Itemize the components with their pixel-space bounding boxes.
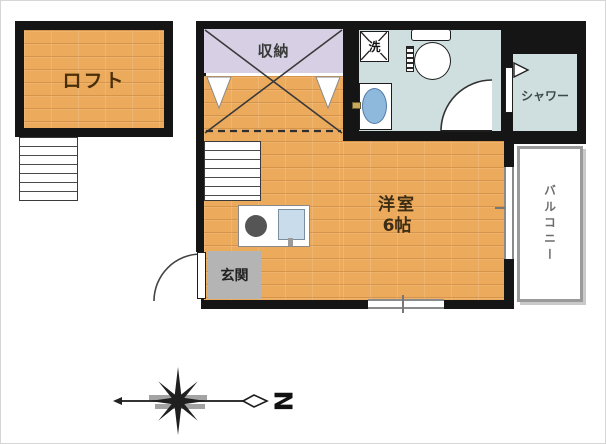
- kitchen-faucet-icon: [288, 238, 293, 246]
- room-type-label: 洋室: [356, 195, 438, 216]
- wall-shower-right: [577, 21, 586, 144]
- balcony-area: バルコニー: [517, 146, 583, 302]
- bottom-window-tick: [402, 295, 404, 313]
- toilet-control-panel: [406, 46, 414, 72]
- entrance-area: 玄関: [208, 251, 261, 299]
- shower-label: シャワー: [511, 87, 579, 104]
- basin-faucet-icon: [352, 102, 361, 109]
- bottom-window: [368, 299, 444, 309]
- bathroom-door-arc: [439, 78, 495, 134]
- folding-door-triangle-left: [207, 77, 231, 108]
- toilet-bowl: [414, 42, 451, 80]
- wash-basin-icon: [362, 88, 387, 124]
- wall-bottom-left: [201, 299, 368, 309]
- floorplan-canvas: ロフト 収納 玄関: [0, 0, 606, 444]
- north-letter: N: [269, 391, 298, 412]
- washer-label: 洗: [368, 41, 380, 53]
- wall-bottom-right: [444, 299, 514, 309]
- kitchen-sink: [278, 209, 305, 240]
- toilet-tank: [411, 29, 451, 41]
- main-room-label: 洋室 6帖: [356, 195, 438, 238]
- wall-right-upper: [504, 140, 514, 167]
- storage-label: 収納: [204, 40, 343, 61]
- loft-label: ロフト: [24, 30, 164, 128]
- north-arrowhead-icon: [243, 395, 267, 407]
- folding-door-triangle-right: [316, 77, 340, 108]
- entrance-door-leaf: [197, 252, 206, 299]
- stove-burner-icon: [245, 215, 267, 237]
- shower-door-swing-icon: [512, 61, 530, 79]
- wall-storage-bath-divider: [343, 21, 359, 141]
- wall-above-shower: [501, 21, 586, 54]
- entrance-label: 玄関: [208, 251, 261, 299]
- compass-rose-icon: N: [109, 363, 309, 443]
- balcony-label: バルコニー: [542, 184, 559, 264]
- washing-machine: 洗: [360, 31, 389, 62]
- loft-room: ロフト: [15, 21, 173, 137]
- interior-stairs: [204, 141, 261, 201]
- room-size-label: 6帖: [356, 216, 438, 237]
- loft-stairs: [19, 137, 78, 201]
- balcony-window: [504, 167, 514, 259]
- balcony-window-tick: [495, 207, 505, 209]
